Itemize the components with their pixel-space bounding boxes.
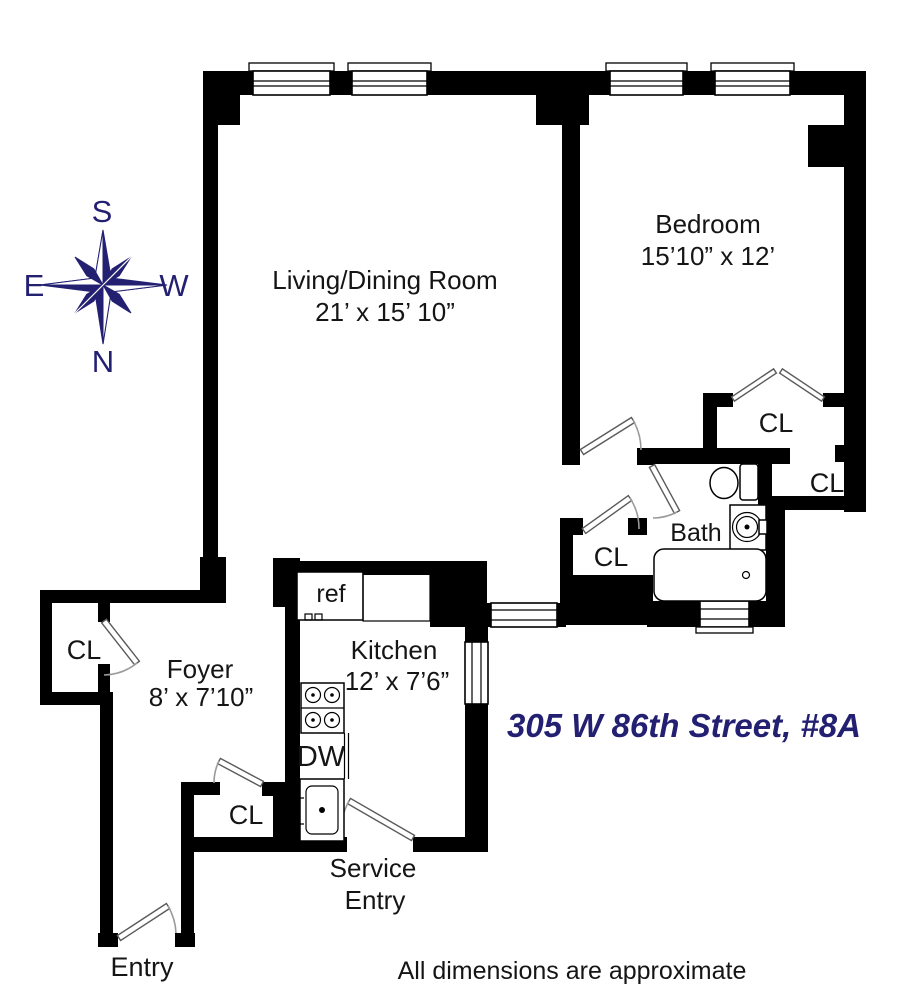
main-entry-label: Entry (110, 952, 174, 982)
wall-segment (562, 448, 580, 465)
toilet-tank (740, 464, 758, 500)
wall-segment (683, 71, 715, 95)
door-leaf (580, 418, 634, 455)
wall-segment (330, 71, 352, 95)
window-living-courtyard (491, 603, 557, 627)
kitchen-sink-drain (319, 807, 325, 813)
wall-segment (413, 837, 488, 852)
dishwasher-label: DW (297, 741, 346, 773)
window-frame (352, 71, 427, 95)
sink-drain (745, 525, 750, 530)
door-swing-arc (214, 761, 219, 783)
wall-segment (749, 601, 785, 627)
bathtub (654, 549, 766, 601)
door-bedroom (580, 418, 641, 455)
window-living-1 (249, 63, 334, 95)
window-kitchen (465, 642, 488, 704)
disclaimer-text: All dimensions are approximate (398, 957, 747, 985)
window-bedroom-1 (606, 63, 687, 95)
wall-segment (647, 601, 700, 627)
window-sill (348, 63, 431, 71)
door-leaf (582, 496, 631, 534)
foyer-dims: 8’ x 7’10” (149, 682, 254, 712)
window-bath (696, 601, 753, 633)
window-sill (249, 63, 334, 71)
refrigerator-label: ref (316, 580, 345, 608)
service-entry-label-1: Service (330, 853, 417, 883)
floor-plan-page: S E W N Living/Dining Room 21’ x 15’ 10”… (0, 0, 918, 1000)
foyer-label: Foyer (167, 654, 234, 684)
closet-label-bedroom: CL (759, 408, 794, 438)
wall-segment (181, 782, 220, 795)
bath-sink (730, 505, 767, 550)
living-room-dims: 21’ x 15’ 10” (315, 297, 455, 327)
stove-burner-dot (311, 718, 315, 722)
closet-label-hall: CL (594, 542, 629, 572)
wall-segment (285, 605, 300, 837)
window-frame (491, 603, 557, 627)
wall-segment (100, 692, 113, 947)
bedroom-label: Bedroom (655, 209, 761, 239)
bath-label: Bath (670, 519, 721, 547)
door-service-entry (340, 798, 415, 840)
window-frame (715, 71, 790, 95)
wall-segment (40, 590, 52, 705)
kitchen-dims: 12’ x 7’6” (345, 666, 450, 696)
wall-segment (98, 603, 110, 622)
wall-segment (560, 575, 653, 625)
wall-segment (465, 627, 488, 642)
door-swing-arc (168, 906, 176, 933)
door-swing-arc (653, 512, 677, 518)
stove-burner-dot (330, 718, 334, 722)
door-leaf (348, 798, 415, 840)
wall-segment (430, 572, 487, 627)
wall-segment (427, 71, 610, 95)
stove (301, 683, 344, 733)
living-room-label: Living/Dining Room (272, 265, 497, 295)
window-sill (606, 63, 687, 71)
wall-segment (562, 125, 580, 448)
window-frame (610, 71, 683, 95)
closet-label-bedroom2: CL (810, 468, 845, 498)
wall-segment (40, 590, 226, 603)
door-leaf (218, 758, 264, 786)
kitchen-label: Kitchen (351, 635, 438, 665)
wall-segment (835, 445, 866, 462)
toilet (710, 464, 758, 500)
address-title: 305 W 86th Street, #8A (507, 707, 861, 744)
wall-segment (703, 393, 717, 448)
wall-segment (203, 71, 253, 95)
door-main-entry (117, 904, 176, 941)
window-living-2 (348, 63, 431, 95)
floor-plan: S E W N Living/Dining Room 21’ x 15’ 10”… (0, 0, 918, 1000)
door-leaf (780, 369, 825, 401)
toilet-bowl (710, 468, 738, 499)
window-sill (696, 627, 753, 633)
compass-label-west: W (159, 268, 189, 303)
bedroom-dims: 15’10” x 12’ (641, 241, 775, 271)
wall-segment (485, 603, 491, 627)
compass-rose: S E W N (24, 194, 190, 379)
window-frame (465, 642, 488, 704)
door-leaf (102, 619, 140, 665)
compass-label-east: E (24, 268, 45, 303)
compass-label-south: S (92, 194, 113, 229)
door-bath (649, 465, 679, 518)
door-leaf (117, 904, 169, 941)
closet-label-foyer: CL (67, 635, 102, 665)
wall-segment (637, 448, 655, 465)
sink-faucet (759, 520, 767, 534)
door-leaf (649, 465, 679, 514)
window-bedroom-2 (711, 63, 794, 95)
compass-label-north: N (92, 344, 114, 379)
door-bedroom-closet-double (732, 369, 825, 401)
wall-segment (98, 933, 118, 947)
door-swing-arc (633, 420, 641, 450)
window-sill (711, 63, 794, 71)
stove-burner-dot (311, 693, 315, 697)
wall-segment (560, 518, 583, 535)
wall-segment (203, 95, 218, 560)
window-frame (700, 601, 749, 627)
door-service-closet (214, 758, 263, 786)
wall-segment (823, 393, 845, 407)
wall-segment (536, 95, 589, 125)
counter-top (363, 572, 430, 621)
kitchen-sink (299, 779, 344, 841)
stove-burner-dot (330, 693, 334, 697)
wall-segment (628, 518, 647, 535)
window-frame (253, 71, 330, 95)
wall-segment (98, 664, 110, 696)
service-entry-label-2: Entry (345, 885, 406, 915)
wall-segment (465, 704, 488, 837)
door-leaf (732, 369, 777, 401)
wall-segment (181, 782, 194, 947)
closet-label-service: CL (229, 800, 264, 830)
wall-segment (808, 125, 844, 167)
